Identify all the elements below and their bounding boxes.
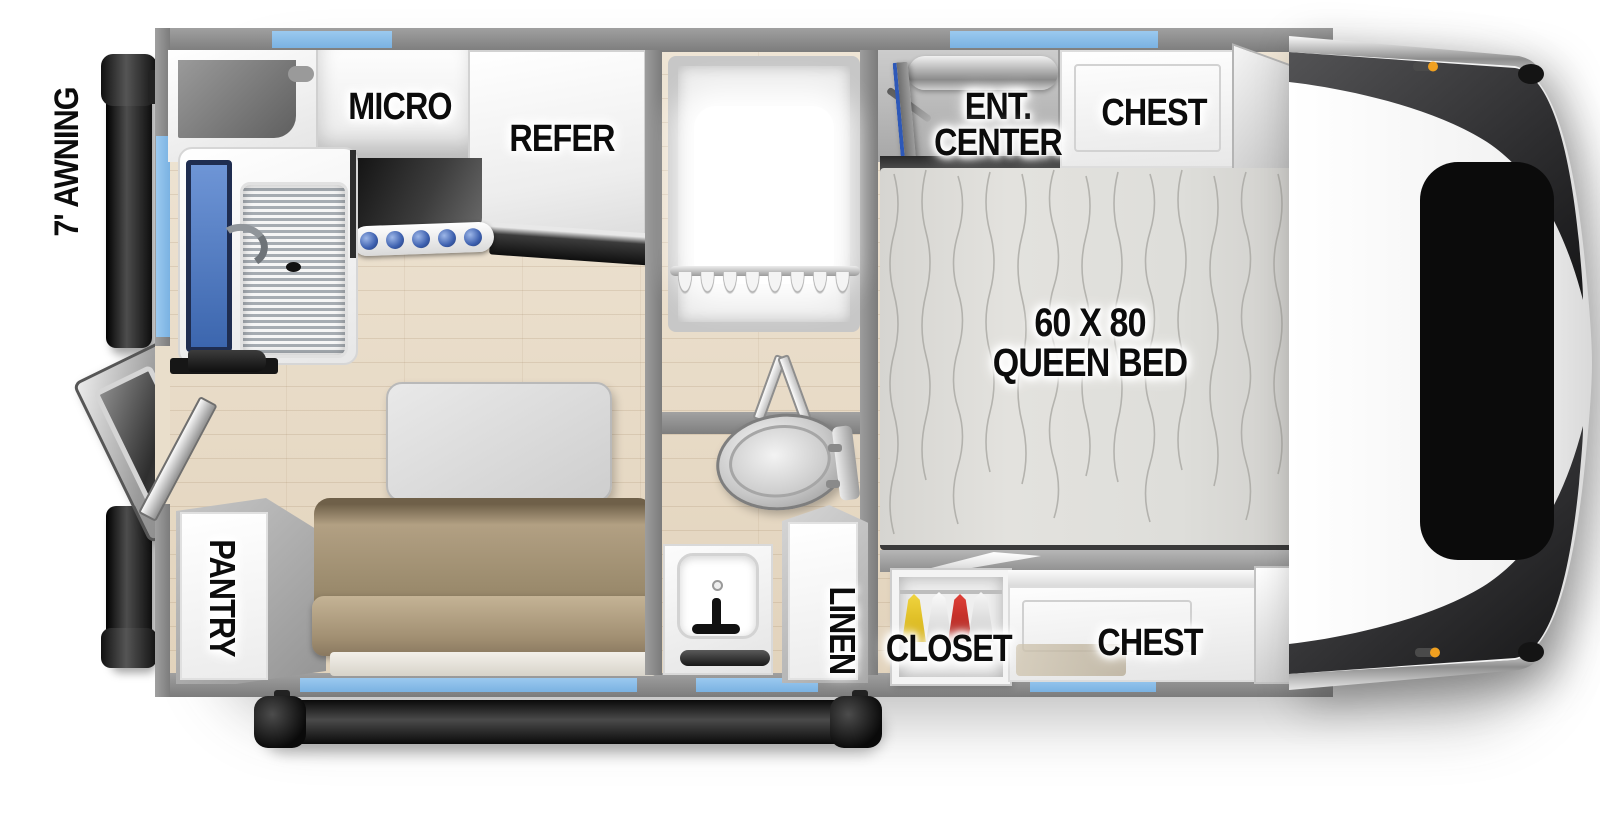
bathroom-faucet-handle-icon [692, 624, 740, 634]
bed-label-line1: 60 X 80 [980, 303, 1201, 343]
dinette-table [386, 382, 612, 502]
stove-knob-icon [412, 230, 431, 249]
entertainment-center-top-icon [908, 56, 1058, 90]
cooktop [344, 158, 482, 232]
refer-label: REFER [492, 120, 631, 158]
stove-knob-panel [352, 222, 495, 257]
floorplan-canvas: 7' AWNING MICRO REFER ENT. CENTER CHEST … [0, 0, 1600, 840]
awning-roller-cap-icon [254, 696, 306, 748]
ent-center-label-line2: CENTER [920, 124, 1076, 162]
cabinet-knob-icon [288, 66, 314, 82]
front-cap [1283, 22, 1597, 704]
stove-knob-icon [360, 232, 379, 251]
awning-label: 7' AWNING [50, 79, 90, 245]
toilet-hinge-icon [828, 444, 842, 452]
awning-roller-icon [258, 700, 878, 744]
stove-knob-icon [386, 231, 405, 250]
window-strip [300, 678, 637, 692]
shower-skylight [694, 106, 834, 284]
bathroom-wall-left [645, 50, 662, 675]
chest-top-label: CHEST [1079, 94, 1229, 132]
closet-label: CLOSET [886, 630, 998, 668]
bathroom-sink-drain-icon [712, 580, 723, 591]
awning-roller-cap-icon [830, 696, 882, 748]
towel-bar-icon [680, 650, 770, 666]
entry-step [188, 350, 266, 372]
closet-rod-icon [900, 590, 1002, 594]
corner-cabinet-opening [178, 60, 296, 138]
ent-center-label-line1: ENT. [947, 88, 1049, 126]
marker-light-icon [1428, 62, 1438, 72]
awning-arm-bottom-cap-icon [101, 628, 157, 668]
micro-label: MICRO [334, 88, 467, 126]
toilet-hinge-icon [826, 480, 840, 488]
counter-edge [350, 150, 356, 258]
window-strip [950, 31, 1158, 48]
linen-label: LINEN [820, 558, 864, 703]
sofa-seat [312, 596, 656, 656]
chest-bottom-label: CHEST [1074, 624, 1227, 662]
pantry-label: PANTRY [198, 532, 246, 665]
toilet-lid-icon [725, 419, 835, 503]
marker-light-icon [1430, 648, 1440, 658]
window-strip [156, 136, 170, 337]
sink-drain-icon [286, 262, 301, 272]
bed-label-line2: QUEEN BED [963, 343, 1218, 383]
cap-chrome-tip-top [1518, 64, 1544, 84]
shower-curtain-icon [674, 272, 854, 332]
front-window [1420, 162, 1554, 560]
sofa-step [330, 652, 656, 676]
stove-knob-icon [438, 229, 457, 248]
cap-chrome-tip-bottom [1518, 642, 1544, 662]
window-strip [272, 31, 392, 48]
stove-knob-icon [464, 228, 483, 247]
